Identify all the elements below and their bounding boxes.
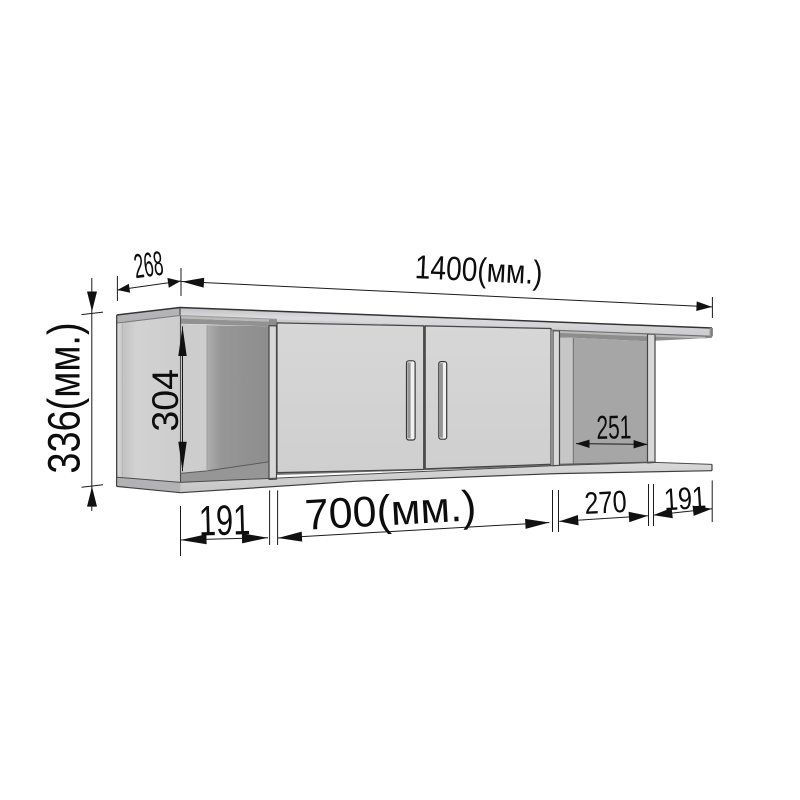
- svg-text:270: 270: [584, 483, 628, 520]
- svg-text:304: 304: [144, 369, 185, 432]
- svg-text:700(мм.): 700(мм.): [304, 482, 478, 539]
- svg-text:1400(мм.): 1400(мм.): [414, 248, 543, 292]
- svg-text:191: 191: [663, 480, 707, 518]
- svg-text:251: 251: [596, 408, 632, 446]
- svg-text:268: 268: [132, 243, 166, 286]
- svg-text:191: 191: [198, 495, 251, 544]
- svg-text:336(мм.): 336(мм.): [38, 322, 89, 473]
